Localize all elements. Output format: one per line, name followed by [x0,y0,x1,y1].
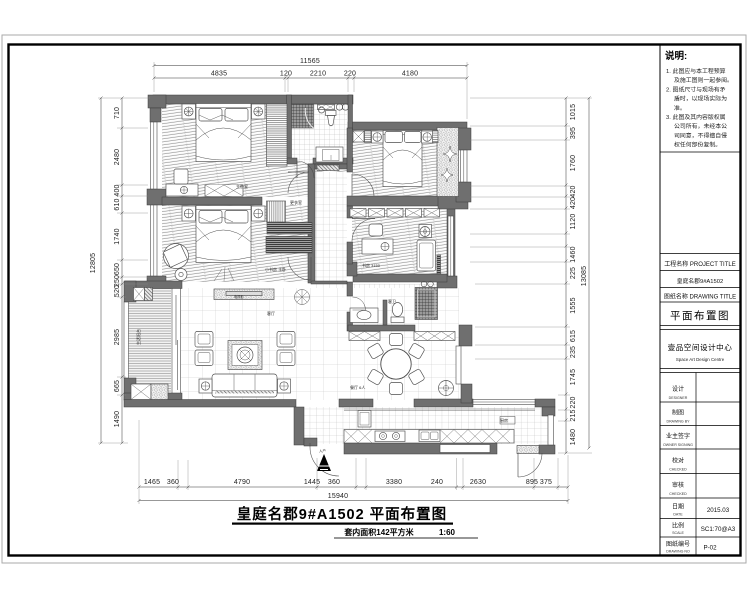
svg-text:平面布置图: 平面布置图 [670,310,730,322]
svg-text:SC1:70@A3: SC1:70@A3 [701,526,736,533]
svg-text:CHECKED: CHECKED [669,468,687,472]
svg-text:1460: 1460 [570,246,577,262]
svg-text:1:60: 1:60 [439,528,456,537]
svg-text:615: 615 [570,330,577,342]
svg-text:工程名称 PROJECT TITLE: 工程名称 PROJECT TITLE [664,260,735,268]
svg-text:公司所有，未经本公: 公司所有，未经本公 [674,122,727,130]
svg-text:710: 710 [114,107,121,119]
svg-text:主卧室: 主卧室 [236,183,248,189]
svg-text:生活阳台: 生活阳台 [135,329,141,345]
svg-text:2985: 2985 [114,329,121,345]
svg-text:入户: 入户 [319,448,326,453]
svg-text:895: 895 [526,479,538,486]
svg-text:235: 235 [570,346,577,358]
svg-text:SCALE: SCALE [672,531,684,535]
svg-text:420: 420 [570,185,577,197]
svg-text:13085: 13085 [581,266,588,286]
svg-text:240: 240 [431,479,443,486]
svg-text:1490: 1490 [114,411,121,427]
svg-text:校对: 校对 [672,457,684,465]
svg-text:665: 665 [114,380,121,392]
svg-text:650: 650 [114,263,121,275]
svg-text:DRAWING BY: DRAWING BY [666,420,690,424]
svg-text:1555: 1555 [570,297,577,313]
svg-text:220: 220 [570,396,577,408]
svg-text:权任何部份复制。: 权任何部份复制。 [674,141,721,149]
svg-text:图纸名称 DRAWING TITLE: 图纸名称 DRAWING TITLE [664,293,736,301]
svg-text:420: 420 [570,197,577,209]
svg-text:DATE: DATE [673,513,683,517]
svg-text:11565: 11565 [300,58,320,65]
svg-text:4835: 4835 [211,71,227,78]
svg-text:360: 360 [328,479,340,486]
svg-text:120: 120 [280,71,292,78]
svg-text:及施工图则一起参阅。: 及施工图则一起参阅。 [674,76,733,84]
svg-text:DESIGNER: DESIGNER [669,396,688,400]
svg-text:P-02: P-02 [703,545,717,552]
svg-text:220: 220 [344,71,356,78]
svg-text:1465: 1465 [144,479,160,486]
svg-text:电视柜: 电视柜 [234,294,244,299]
svg-text:壹品空间设计中心: 壹品空间设计中心 [668,342,733,352]
svg-text:1. 此图应与本工程预算: 1. 此图应与本工程预算 [666,67,726,75]
svg-text:餐厅 6人: 餐厅 6人 [350,384,365,390]
svg-text:2. 图纸尺寸与现场有矛: 2. 图纸尺寸与现场有矛 [666,85,726,93]
svg-text:准。: 准。 [674,104,686,112]
svg-text:375: 375 [540,479,552,486]
svg-text:15940: 15940 [328,493,348,500]
svg-text:套内面积142平方米: 套内面积142平方米 [343,527,414,537]
svg-text:1740: 1740 [114,228,121,244]
svg-text:更衣室: 更衣室 [290,199,302,205]
svg-text:盾时，以现场实际为: 盾时，以现场实际为 [674,95,727,103]
svg-text:日期: 日期 [672,503,684,511]
svg-text:皇庭名郡9#A1502 平面布置图: 皇庭名郡9#A1502 平面布置图 [237,505,447,523]
svg-text:215: 215 [570,409,577,421]
svg-text:小书房 主卧: 小书房 主卧 [265,266,286,272]
svg-text:1480: 1480 [570,429,577,445]
svg-text:业主签字: 业主签字 [666,432,690,440]
svg-text:客卫: 客卫 [388,298,396,304]
svg-text:1015: 1015 [570,104,577,120]
svg-text:4790: 4790 [234,479,250,486]
svg-text:395: 395 [570,127,577,139]
svg-text:1120: 1120 [570,214,577,230]
svg-text:400: 400 [114,184,121,196]
svg-text:说明:: 说明: [665,50,687,62]
svg-text:4180: 4180 [402,71,418,78]
svg-text:1745: 1745 [570,369,577,385]
svg-text:1760: 1760 [570,155,577,171]
svg-text:比例: 比例 [672,522,684,530]
svg-text:OWNER SIGNING: OWNER SIGNING [663,443,693,447]
svg-text:3. 此图及其内容版权属: 3. 此图及其内容版权属 [666,113,726,121]
svg-text:客厅: 客厅 [267,310,275,316]
svg-text:审核: 审核 [672,481,684,489]
svg-text:610: 610 [114,198,121,210]
svg-text:2210: 2210 [310,71,326,78]
svg-text:3380: 3380 [386,479,402,486]
svg-text:360: 360 [167,479,179,486]
svg-text:图纸编号: 图纸编号 [666,540,690,548]
svg-text:皇庭名郡9#A1502: 皇庭名郡9#A1502 [677,277,723,285]
svg-text:12805: 12805 [90,253,97,273]
svg-text:Space Art Design Centre: Space Art Design Centre [676,357,725,362]
svg-text:厨房: 厨房 [500,417,508,423]
svg-text:520: 520 [114,285,121,297]
svg-text:2630: 2630 [470,479,486,486]
svg-text:DRAWING NO: DRAWING NO [666,550,690,554]
svg-text:CHECKED: CHECKED [669,492,687,496]
svg-text:1445: 1445 [304,479,320,486]
svg-text:司同意，不得擅自侵: 司同意，不得擅自侵 [674,131,727,139]
svg-text:制图: 制图 [672,409,684,417]
svg-text:2015.03: 2015.03 [707,507,730,514]
svg-text:设计: 设计 [672,385,684,393]
svg-text:2480: 2480 [114,149,121,165]
svg-text:225: 225 [570,267,577,279]
svg-text:书房 3150: 书房 3150 [362,262,381,268]
